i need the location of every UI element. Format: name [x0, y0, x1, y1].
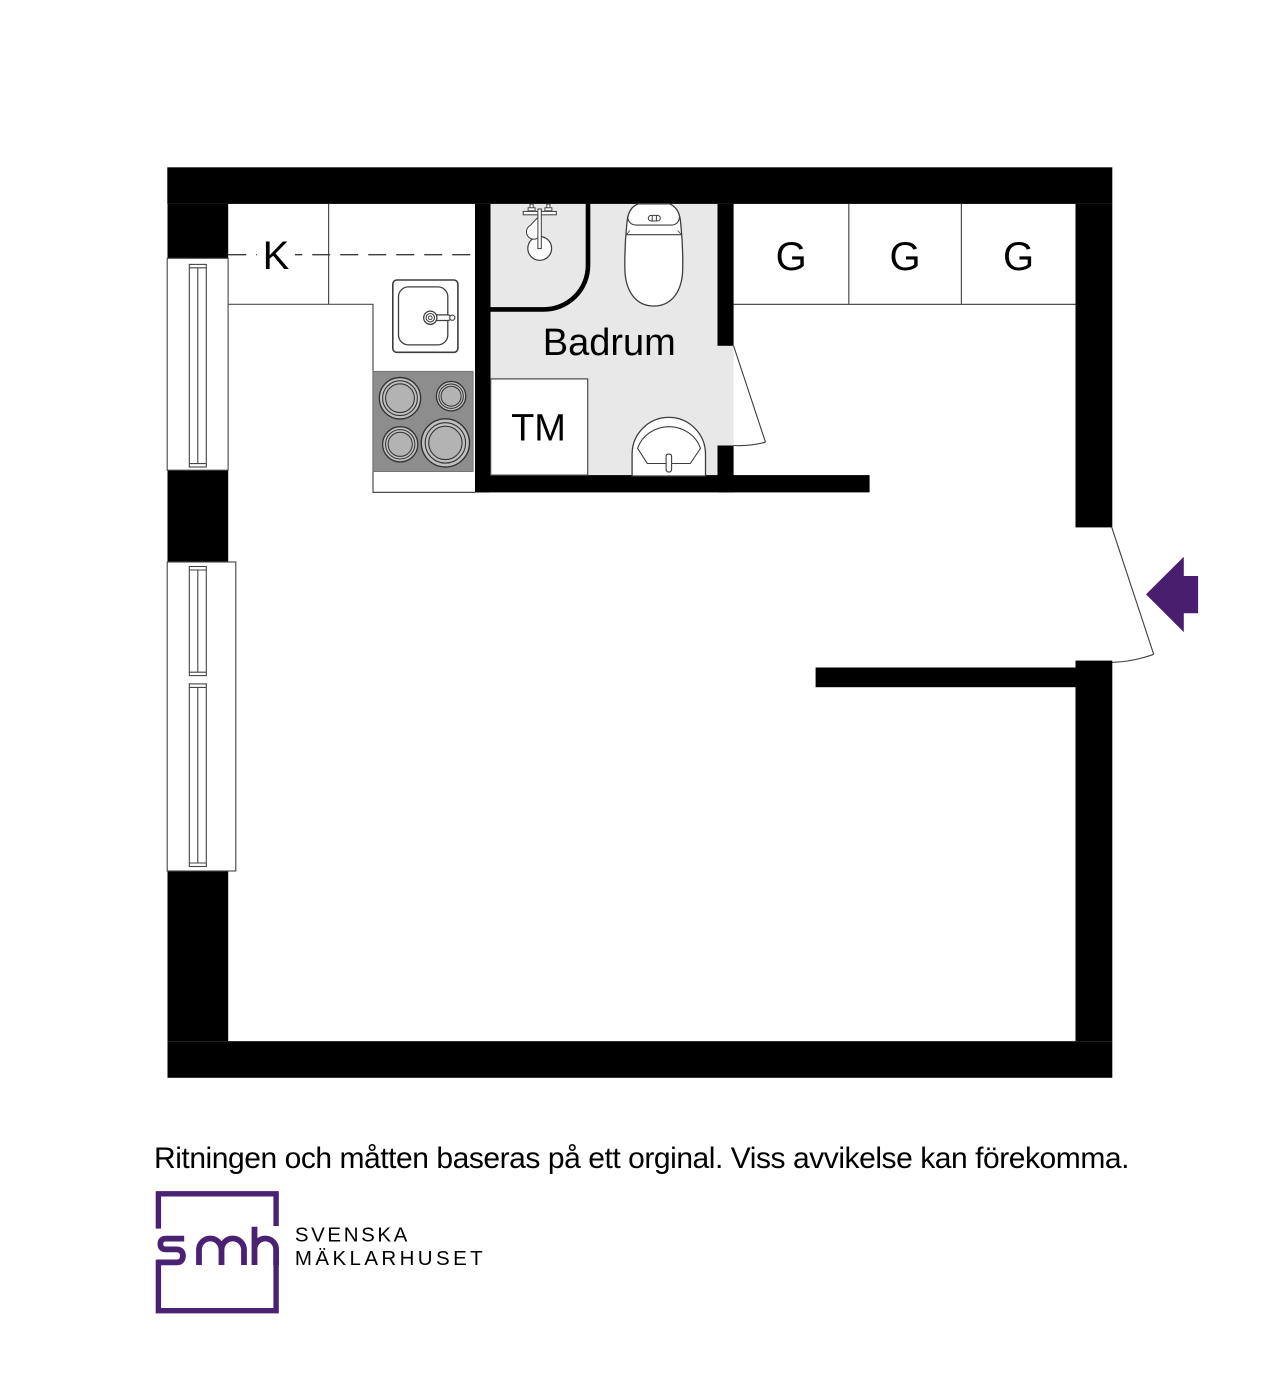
svg-text:TM: TM [511, 408, 566, 450]
svg-text:K: K [263, 234, 290, 278]
svg-text:SVENSKA: SVENSKA [295, 1223, 410, 1246]
svg-text:Ritningen och måtten baseras p: Ritningen och måtten baseras på ett orgi… [154, 1142, 1129, 1175]
svg-text:G: G [890, 235, 921, 279]
svg-text:Badrum: Badrum [543, 322, 676, 364]
svg-text:G: G [776, 235, 807, 279]
svg-text:G: G [1003, 235, 1034, 279]
svg-text:MÄKLARHUSET: MÄKLARHUSET [295, 1247, 486, 1270]
